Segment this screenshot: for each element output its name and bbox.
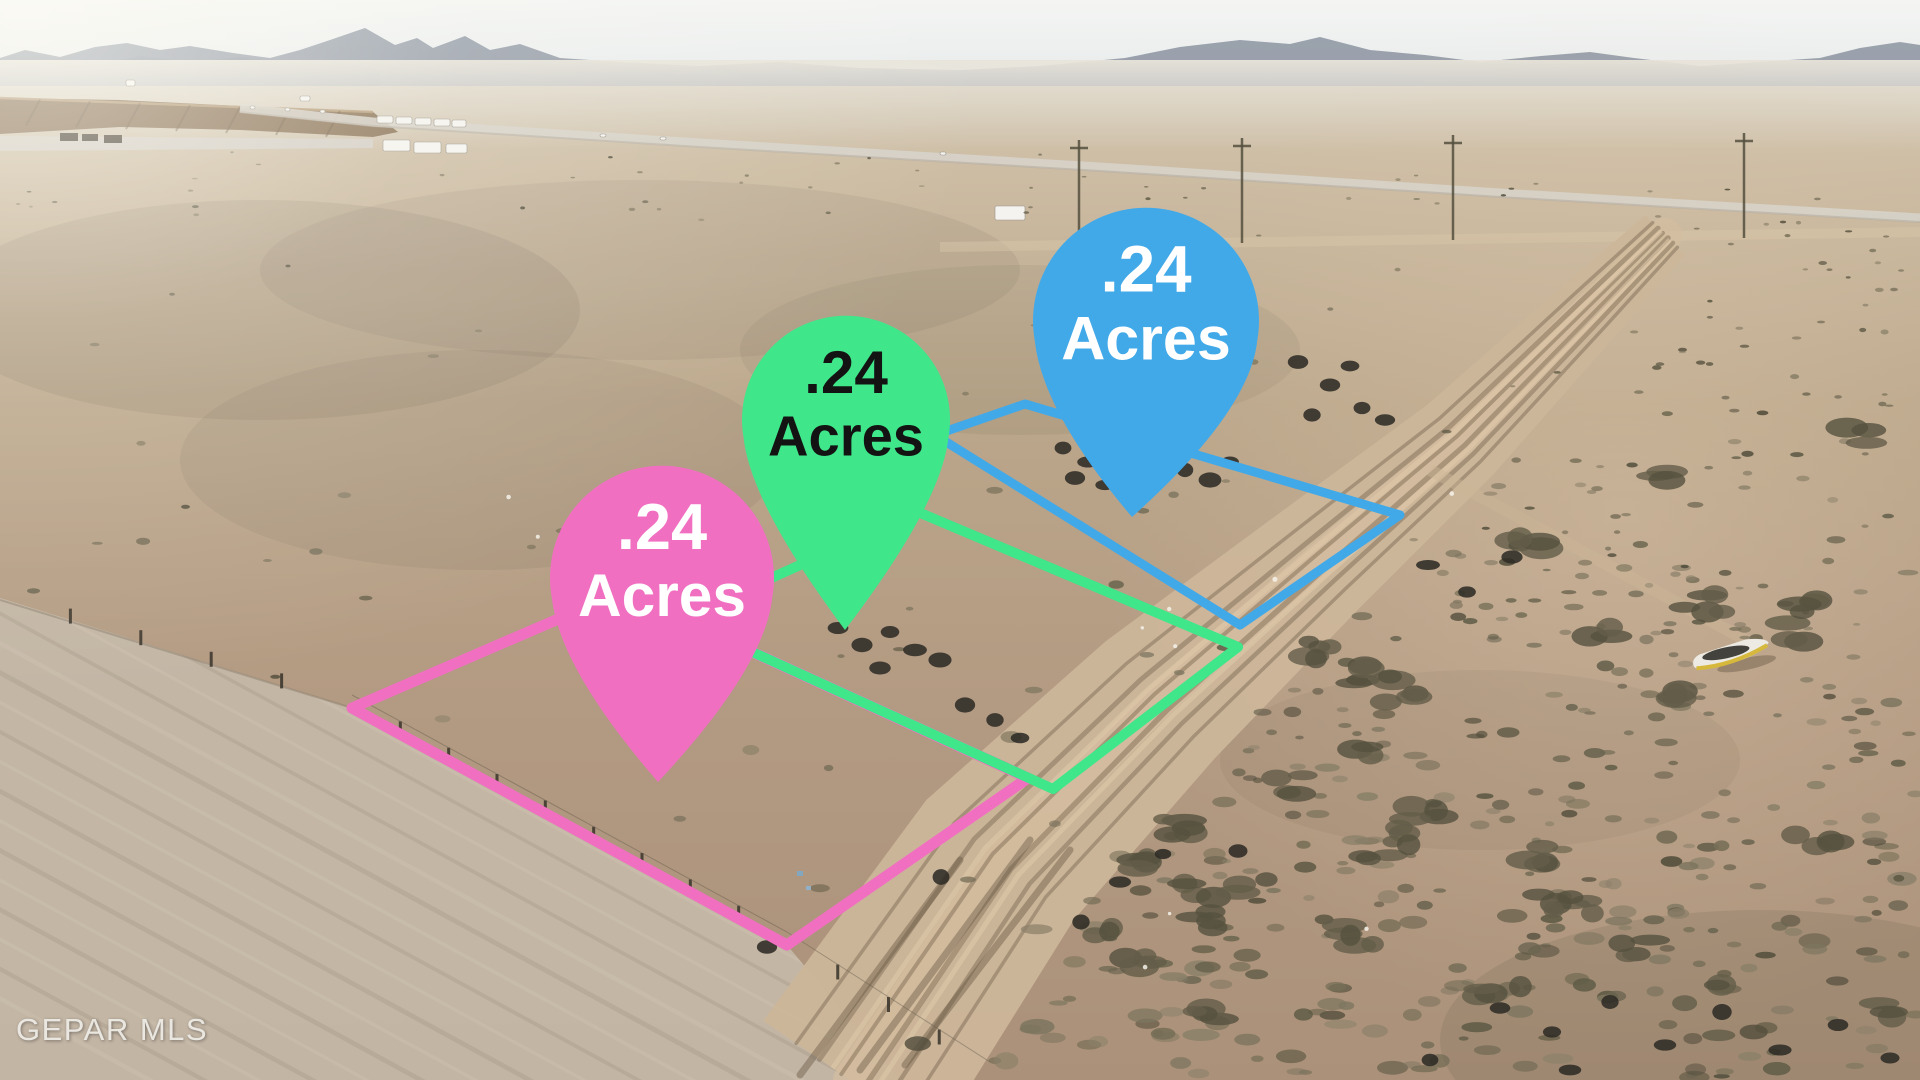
scene-canvas: .24Acres.24Acres.24Acres (0, 0, 1920, 1080)
pin-acreage-unit-green: Acres (768, 404, 924, 467)
mls-watermark: GEPAR MLS (16, 1012, 208, 1048)
pin-acreage-value-blue: .24 (1100, 233, 1192, 306)
pin-acreage-value-pink: .24 (617, 490, 707, 563)
pin-acreage-unit-pink: Acres (578, 561, 746, 629)
aerial-photo: .24Acres.24Acres.24Acres GEPAR MLS (0, 0, 1920, 1080)
pin-acreage-value-green: .24 (804, 338, 888, 406)
pin-acreage-unit-blue: Acres (1061, 304, 1231, 372)
